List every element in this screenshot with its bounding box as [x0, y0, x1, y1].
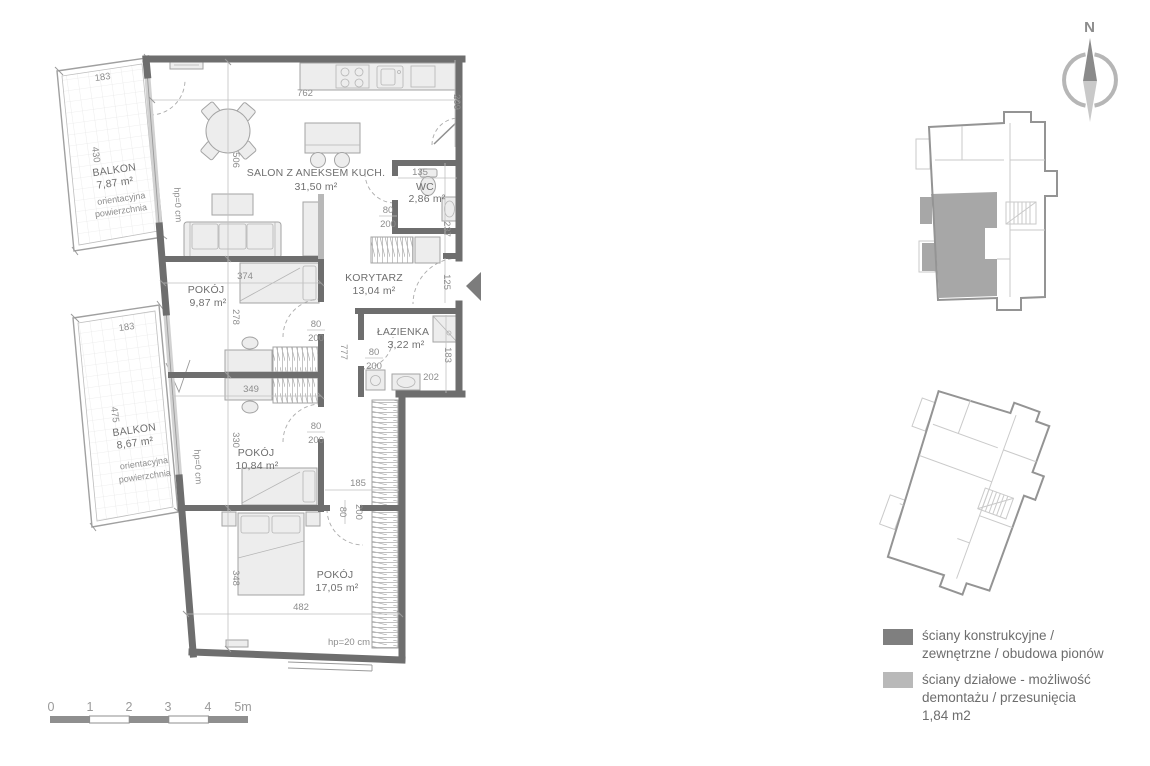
sofa	[184, 222, 281, 258]
dim-348: 348	[230, 570, 241, 586]
scale-5m: 5m	[234, 700, 251, 714]
dim-374: 374	[237, 271, 253, 282]
furniture	[170, 61, 459, 648]
scale-segment	[169, 716, 209, 723]
door-size-pokoj3: 80 200	[337, 504, 364, 520]
door-h: 200	[308, 333, 324, 344]
hall-cabinet	[415, 237, 440, 263]
scale-4: 4	[205, 700, 212, 714]
door-w: 80	[369, 347, 380, 358]
dim-183-bath: 183	[442, 347, 453, 363]
dim-balcony1-height: 430	[89, 146, 102, 163]
scale-segment	[90, 716, 130, 723]
pokoj1-area: 9,87 m²	[190, 297, 227, 309]
salon-name: SALON Z ANEKSEM KUCH.	[247, 167, 385, 179]
door-size-pokoj1: 80 200	[307, 319, 325, 344]
dim-777: 777	[338, 344, 349, 360]
compass-needle-north	[1083, 38, 1097, 81]
door-size-pokoj2: 80 200	[307, 421, 325, 446]
scale-segment	[50, 716, 90, 723]
compass-ring-left	[1064, 54, 1085, 105]
kitchen-island	[305, 123, 360, 168]
dim-hp0-b: hp=0 cm	[192, 449, 204, 484]
wardrobe-wall	[372, 400, 398, 648]
pokoj1-name: POKÓJ	[188, 283, 225, 296]
lazienka-name: ŁAZIENKA	[377, 326, 429, 338]
scale-bar: 0 1 2 3 4 5m	[48, 700, 252, 723]
legend-partition-line3: 1,84 m2	[922, 708, 971, 723]
kitchen-counter	[300, 63, 459, 90]
bar-stool	[311, 153, 326, 168]
door-arc-pokoj1	[283, 299, 321, 337]
dim-202: 202	[423, 372, 439, 383]
building-outline-2	[876, 377, 1064, 607]
key-plan-highlighted	[916, 112, 1057, 310]
door-w: 80	[311, 421, 322, 432]
door-w: 80	[311, 319, 322, 330]
legend-structural-line2: zewnętrzne / obudowa pionów	[922, 646, 1104, 661]
door-arc-balcony1	[150, 80, 185, 115]
dim-125: 125	[441, 274, 452, 290]
pokoj3-name: POKÓJ	[317, 568, 354, 581]
korytarz-name: KORYTARZ	[345, 272, 403, 284]
dim-balcony1-width: 183	[94, 71, 111, 84]
radiator	[226, 640, 248, 647]
door-size-bath: 80 200	[365, 347, 383, 372]
scale-0: 0	[48, 700, 55, 714]
hall-wardrobe	[371, 237, 413, 263]
dim-balcony2-height: 475	[108, 406, 121, 423]
compass-needle-south	[1083, 81, 1097, 122]
wall-bottom	[192, 652, 402, 660]
salon-cabinet	[303, 202, 319, 256]
stairs-1	[1006, 202, 1036, 224]
door-h: 200	[353, 504, 364, 520]
pokoj2-area: 10,84 m²	[235, 460, 278, 472]
stairs-2	[978, 488, 1014, 519]
door-h: 200	[366, 361, 382, 372]
dim-balcony2-width: 183	[118, 321, 135, 334]
bath-washbasin	[392, 374, 420, 390]
apartment-highlight	[931, 192, 997, 298]
washing-machine	[366, 370, 385, 390]
shower	[433, 316, 457, 342]
dim-209: 209	[451, 94, 462, 110]
door-h: 200	[308, 435, 324, 446]
dim-482: 482	[293, 602, 309, 613]
scale-1: 1	[87, 700, 94, 714]
legend-structural-line1: ściany konstrukcyjne /	[922, 628, 1054, 643]
scale-3: 3	[165, 700, 172, 714]
legend-partition-line1: ściany działowe - możliwość	[922, 672, 1091, 687]
scale-segment	[129, 716, 169, 723]
door-w: 80	[383, 205, 394, 216]
bar-stool	[335, 153, 350, 168]
legend-partition-swatch	[883, 672, 913, 688]
dim-349: 349	[243, 384, 259, 395]
north-label: N	[1084, 19, 1096, 36]
legend-partition-line2: demontażu / przesunięcia	[922, 690, 1076, 705]
nightstand	[222, 512, 236, 526]
dim-506: 506	[230, 152, 241, 168]
dim-278: 278	[230, 309, 241, 325]
dim-hp20: hp=20 cm	[328, 637, 370, 648]
floor-plan-canvas: BALKON 7,87 m² orientacyjna powierzchnia…	[0, 0, 1150, 766]
floor-plan-page: BALKON 7,87 m² orientacyjna powierzchnia…	[0, 0, 1150, 766]
legend-structural-swatch	[883, 629, 913, 645]
wardrobe-1	[273, 347, 320, 372]
scale-segment	[208, 716, 248, 723]
bed-single-2	[242, 468, 317, 505]
pokoj3-area: 17,05 m²	[315, 582, 358, 594]
legend: ściany konstrukcyjne / zewnętrzne / obud…	[883, 628, 1104, 723]
desk-1	[225, 337, 272, 372]
pokoj2-name: POKÓJ	[238, 446, 275, 459]
dim-330: 330	[230, 432, 241, 448]
wc-name: WC	[416, 181, 434, 193]
wardrobe-2	[273, 378, 320, 403]
dim-hp0-a: hp=0 cm	[172, 187, 184, 222]
compass: N	[1064, 19, 1116, 122]
salon-area: 31,50 m²	[294, 181, 337, 193]
dim-237: 237	[441, 221, 452, 237]
entrance-arrow-icon	[466, 272, 481, 301]
korytarz-area: 13,04 m²	[352, 285, 395, 297]
dim-135: 135	[412, 167, 428, 178]
coffee-table	[212, 194, 253, 215]
nightstand	[306, 512, 320, 526]
dim-185: 185	[350, 478, 366, 489]
compass-ring-right	[1095, 54, 1116, 105]
dim-762: 762	[297, 88, 313, 99]
lazienka-area: 3,22 m²	[388, 339, 425, 351]
door-h: 200	[380, 219, 396, 230]
scale-2: 2	[126, 700, 133, 714]
door-w: 80	[337, 507, 348, 518]
wc-area: 2,86 m²	[409, 193, 446, 205]
key-plan-rotated	[864, 373, 1064, 607]
